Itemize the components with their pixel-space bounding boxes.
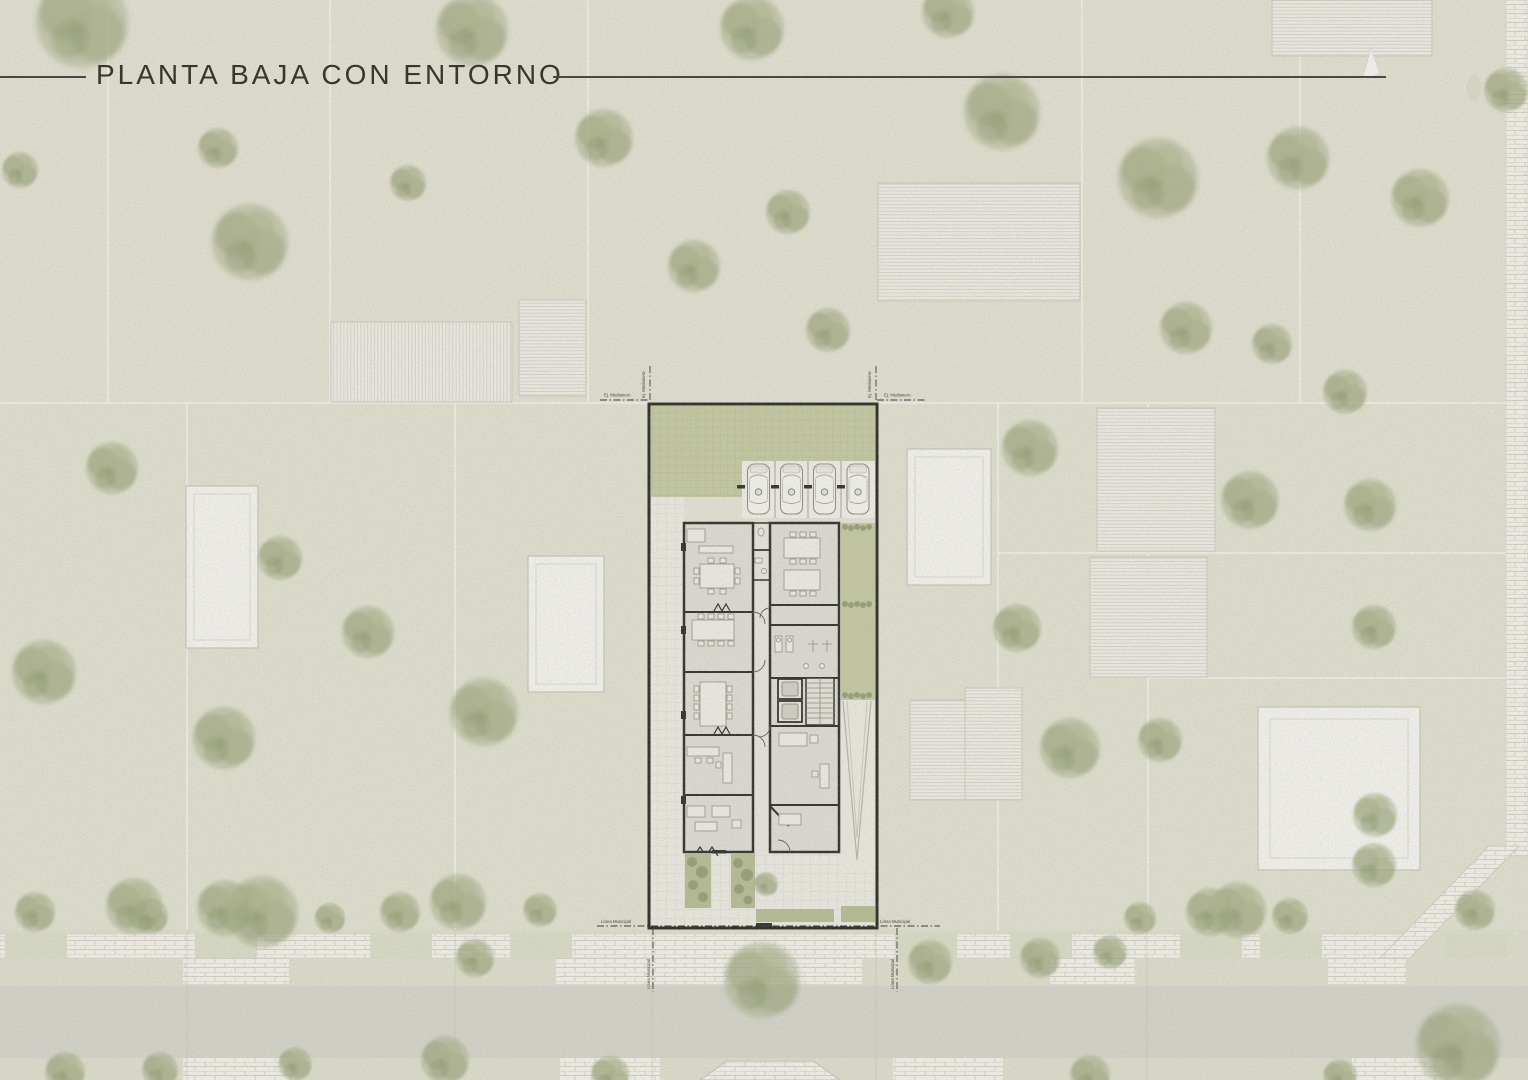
elevator-core <box>778 678 834 725</box>
municipal-line-label: Línea Municipal <box>890 959 895 989</box>
ramp <box>841 700 875 928</box>
parking-area <box>737 461 875 518</box>
pool <box>528 556 604 692</box>
pool <box>186 486 258 648</box>
axis-label: Ej. Medianero <box>884 393 911 398</box>
car-icon <box>847 464 869 514</box>
car-icon <box>748 464 770 514</box>
side-garden <box>841 523 875 700</box>
right-sidewalk <box>1506 0 1528 856</box>
pool <box>1258 707 1420 870</box>
car-icon <box>814 464 836 514</box>
site-plan-sheet: Ej. Medianero Ej. Medianero Ej. Medianer… <box>0 0 1528 1080</box>
axis-label: Ej. Medianero <box>604 393 631 398</box>
axis-label: Ej. Medianero <box>867 371 872 398</box>
building <box>681 523 839 856</box>
axis-label: Ej. Medianero <box>641 371 646 398</box>
municipal-line-label: Línea Municipal <box>601 919 631 924</box>
municipal-line-label: Línea Municipal <box>646 959 651 989</box>
pool <box>907 449 991 585</box>
site-plan-drawing: Ej. Medianero Ej. Medianero Ej. Medianer… <box>0 0 1528 1080</box>
municipal-line-label: Línea Municipal <box>880 919 910 924</box>
car-icon <box>781 464 803 514</box>
